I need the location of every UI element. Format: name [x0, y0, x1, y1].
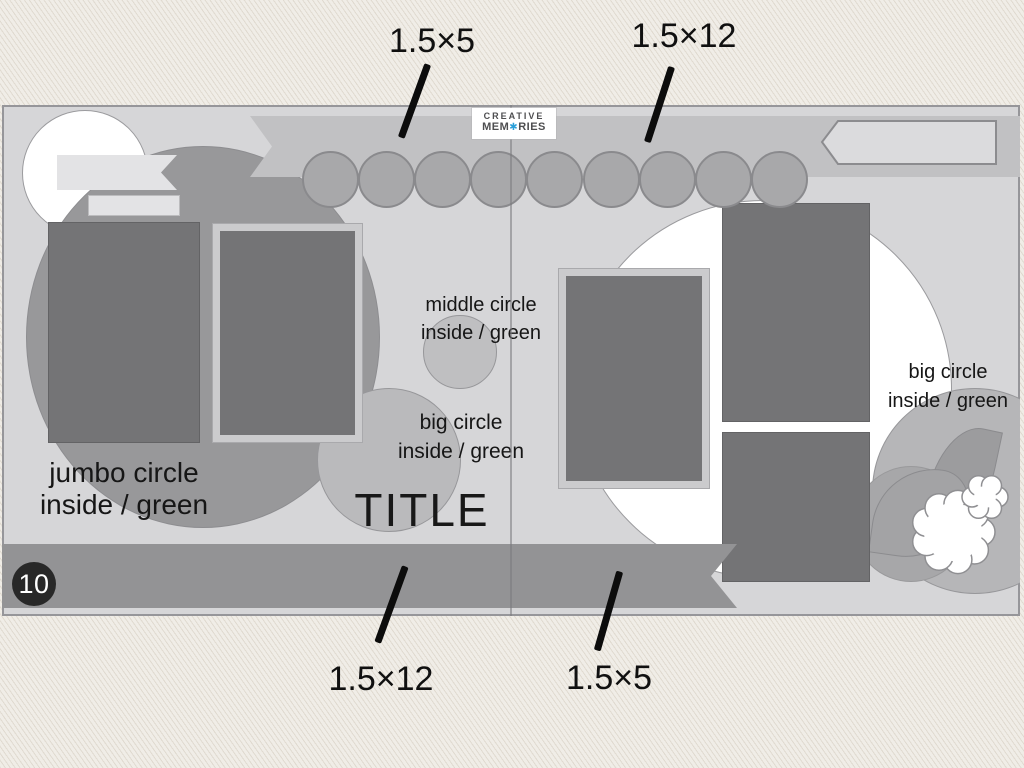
dimension-label-top-left: 1.5×5	[352, 22, 512, 61]
garland-circle	[751, 151, 808, 208]
ribbon-banner-small	[57, 155, 177, 190]
framed-photo-placeholder	[212, 223, 363, 443]
garland-circle	[470, 151, 527, 208]
photo-placeholder	[722, 203, 870, 422]
garland-circle	[695, 151, 752, 208]
garland-circle	[414, 151, 471, 208]
scrapbook-spread: creative mem✱ries	[2, 105, 1020, 616]
photo-placeholder	[220, 231, 355, 435]
garland-circle	[639, 151, 696, 208]
flower-icon	[953, 465, 1017, 529]
jumbo-circle-label: jumbo circle inside / green	[4, 457, 244, 521]
dimension-label-bottom-left: 1.5×12	[301, 660, 461, 699]
dimension-label-bottom-right: 1.5×5	[529, 659, 689, 698]
dimension-label-top-right: 1.5×12	[604, 17, 764, 56]
big-circle-left-label: big circle inside / green	[370, 408, 552, 466]
flower-o-icon: ✱	[509, 122, 518, 133]
garland-circle	[526, 151, 583, 208]
label-strip-placeholder	[88, 195, 180, 216]
photo-placeholder	[48, 222, 200, 443]
middle-circle-label: middle circle inside / green	[391, 291, 571, 347]
page-number-badge: 10	[12, 562, 56, 606]
photo-placeholder	[566, 276, 702, 481]
page-divider	[510, 105, 512, 616]
sketch-page: 1.5×5 1.5×12 creative mem✱ries	[0, 0, 1024, 768]
brand-logo-line2: mem✱ries	[472, 121, 556, 134]
framed-photo-placeholder	[558, 268, 710, 489]
bottom-border-ribbon	[2, 544, 737, 608]
big-circle-right-label: big circle inside / green	[863, 358, 1020, 416]
garland-circle	[583, 151, 640, 208]
brand-logo: creative mem✱ries	[472, 108, 556, 139]
title-text: TITLE	[322, 483, 522, 537]
brand-logo-line1: creative	[472, 111, 556, 121]
garland-circle	[302, 151, 359, 208]
pennant-flag-placeholder	[820, 119, 998, 166]
photo-placeholder	[722, 432, 870, 582]
garland-circle	[358, 151, 415, 208]
